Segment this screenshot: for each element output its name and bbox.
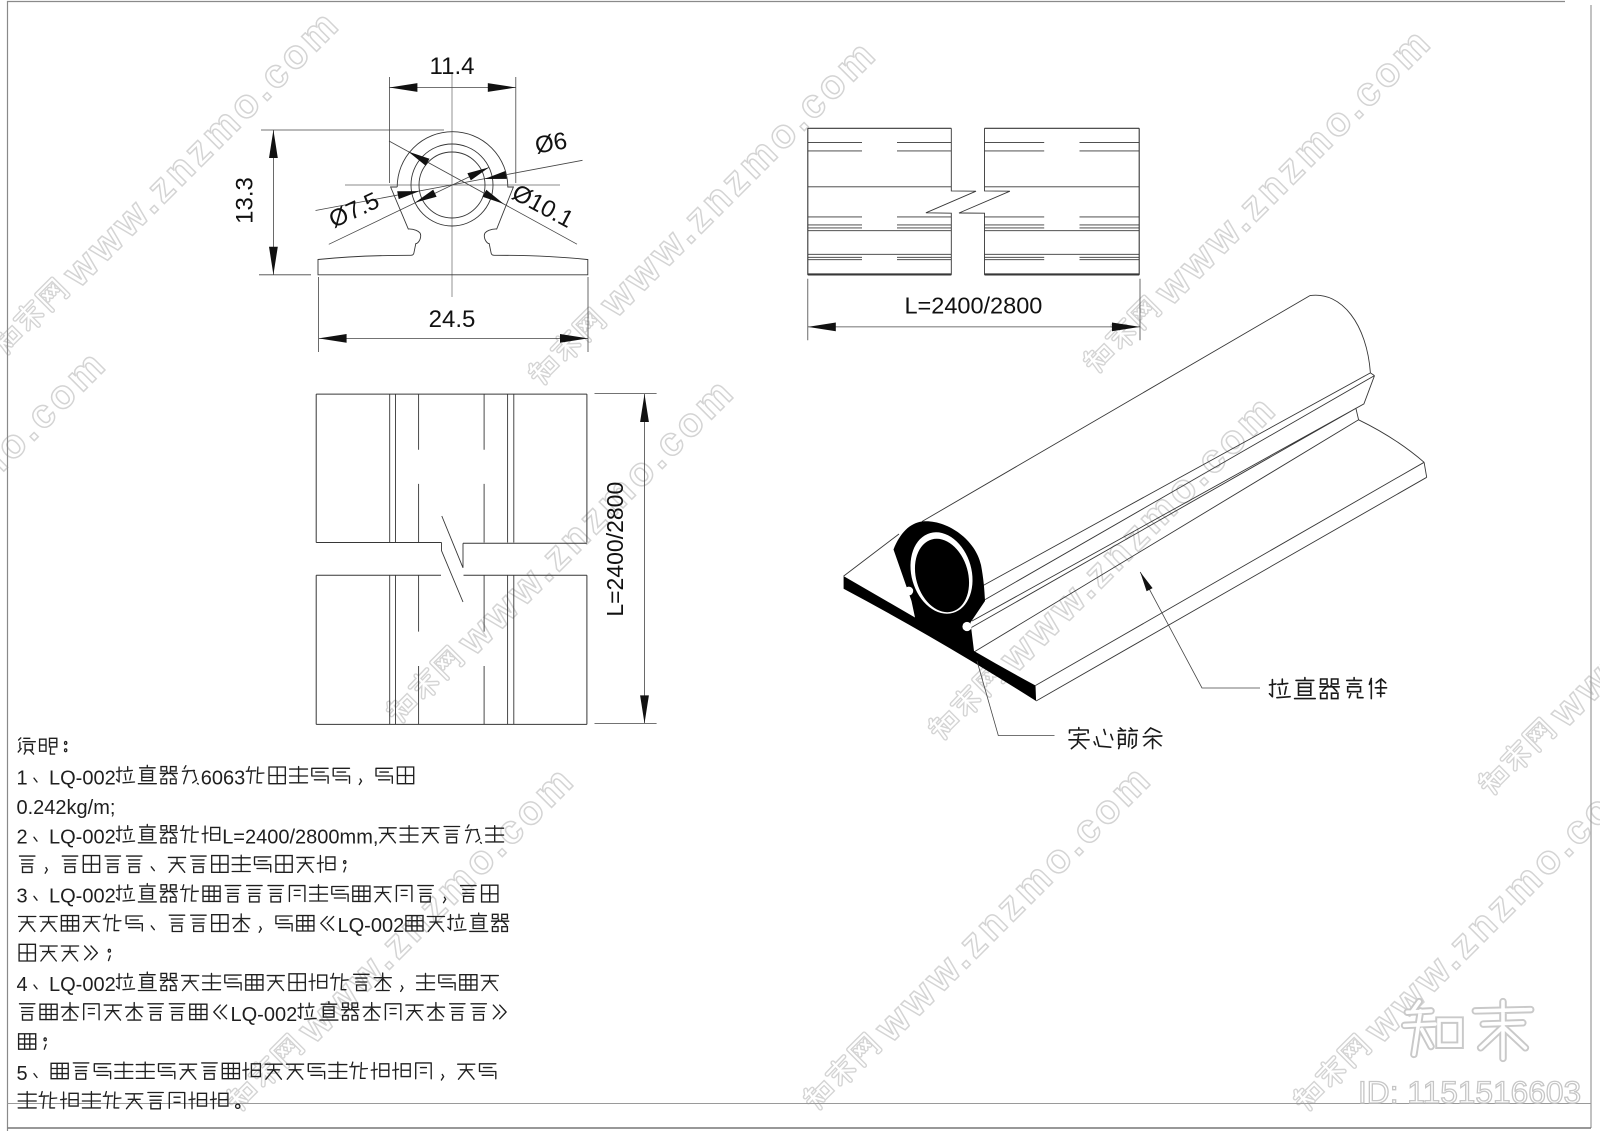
svg-text:LQ-002: LQ-002 (49, 767, 116, 789)
svg-text:2: 2 (17, 827, 28, 849)
svg-text:11.4: 11.4 (430, 53, 475, 80)
svg-text:ID: 1151516603: ID: 1151516603 (1358, 1074, 1581, 1110)
svg-text:L=2400/2800: L=2400/2800 (602, 482, 628, 617)
svg-text:1: 1 (17, 767, 28, 789)
svg-text:Ø6: Ø6 (533, 127, 569, 159)
svg-text:4: 4 (17, 974, 28, 996)
svg-text:24.5: 24.5 (429, 306, 476, 333)
svg-text:LQ-002: LQ-002 (231, 1004, 298, 1026)
svg-text:5: 5 (17, 1063, 28, 1085)
svg-text:6063: 6063 (201, 767, 246, 789)
svg-text:13.3: 13.3 (232, 177, 259, 224)
svg-text:3: 3 (17, 886, 28, 908)
svg-text:L=2400/2800: L=2400/2800 (904, 293, 1042, 319)
svg-text:LQ-002: LQ-002 (49, 974, 116, 996)
svg-text:0.242kg/m;: 0.242kg/m; (17, 797, 116, 819)
svg-text:LQ-002: LQ-002 (49, 827, 116, 849)
svg-text:LQ-002: LQ-002 (338, 915, 405, 937)
svg-text:L=2400/2800mm,: L=2400/2800mm, (222, 827, 378, 849)
svg-text:LQ-002: LQ-002 (49, 886, 116, 908)
